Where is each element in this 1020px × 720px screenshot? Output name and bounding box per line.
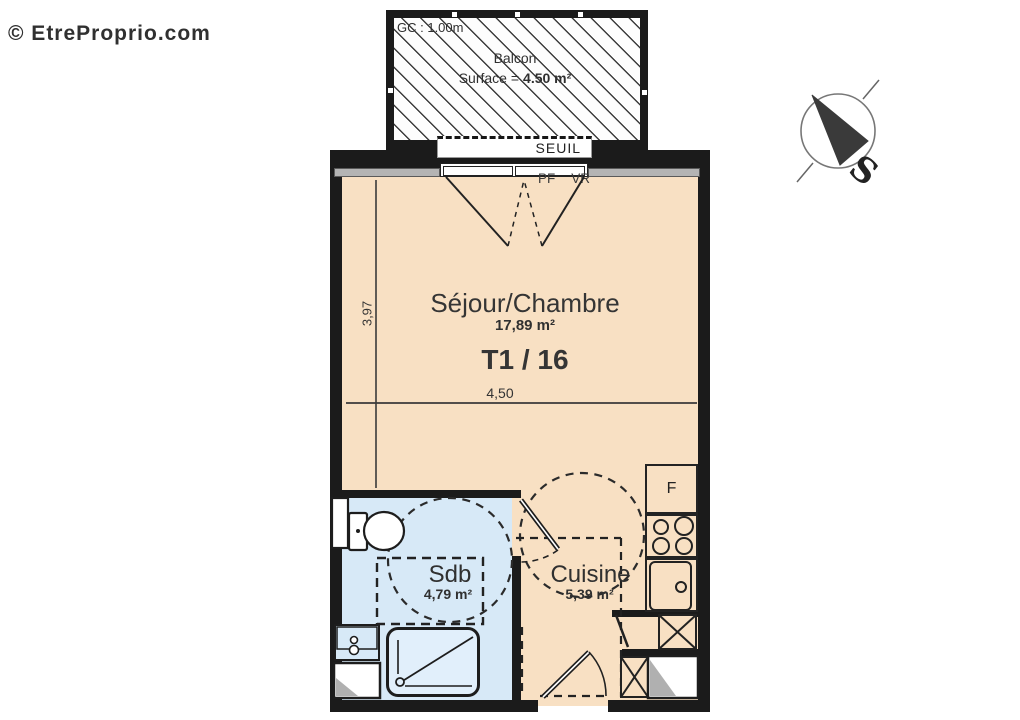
washbasin [334,624,380,661]
bathroom-name-label: Sdb [390,561,510,589]
balcony-threshold-wall-right [592,140,648,152]
balcony-surface-prefix: Surface = [459,70,519,86]
threshold-seuil-box: SEUIL [437,136,592,158]
window-pane-left [443,166,513,176]
living-room-title: Séjour/Chambre [375,288,675,319]
dimension-depth-label: 3,97 [360,293,375,335]
unit-number-label: T1 / 16 [375,344,675,376]
balcony-name-label: Balcon [445,50,585,66]
kitchen-area-label: 5,39 m² [517,586,662,602]
wall-lining-right [588,168,700,177]
shower-tray [386,627,480,697]
wall-bottom-right-segment [608,700,710,712]
fridge-box: F [645,464,698,514]
wall-right [698,150,710,712]
balcony-frame-dot [388,88,393,93]
balcony-threshold-wall-left [386,140,437,152]
balcony-surface-label: Surface =4.50 m² [415,70,615,86]
wall-lining-left [334,168,440,177]
window-pf-vr-label: PFVR [538,171,590,186]
bathroom-area-label: 4,79 m² [388,586,508,602]
balcony-frame-dot [452,12,457,17]
balcony-gc-label: GC : 1.00m [397,20,463,35]
living-room-area: 17,89 m² [375,317,675,334]
compass-south-label: S [841,147,885,194]
balcony-frame-dot [515,12,520,17]
wall-bottom-left-segment [330,700,538,712]
watermark: © EtreProprio.com [8,22,211,46]
fridge-label: F [667,480,677,498]
balcony-frame-dot [578,12,583,17]
balcony-surface-value: 4.50 m² [523,70,571,86]
balcony-frame-dot [642,90,647,95]
window-vr-label: VR [571,171,590,186]
wall-bathroom-top [336,490,521,498]
dimension-width-label: 4,50 [460,385,540,401]
compass-icon: S [797,80,885,194]
kitchen-name-label: Cuisine [518,561,663,589]
window-pf-label: PF [538,171,555,186]
threshold-label: SEUIL [536,140,581,156]
stove-box [645,514,698,558]
floor-plan-page: © EtreProprio.com GC : 1.00m Balcon Surf… [0,0,1020,720]
wall-kitchen-duct-mid [622,649,710,656]
